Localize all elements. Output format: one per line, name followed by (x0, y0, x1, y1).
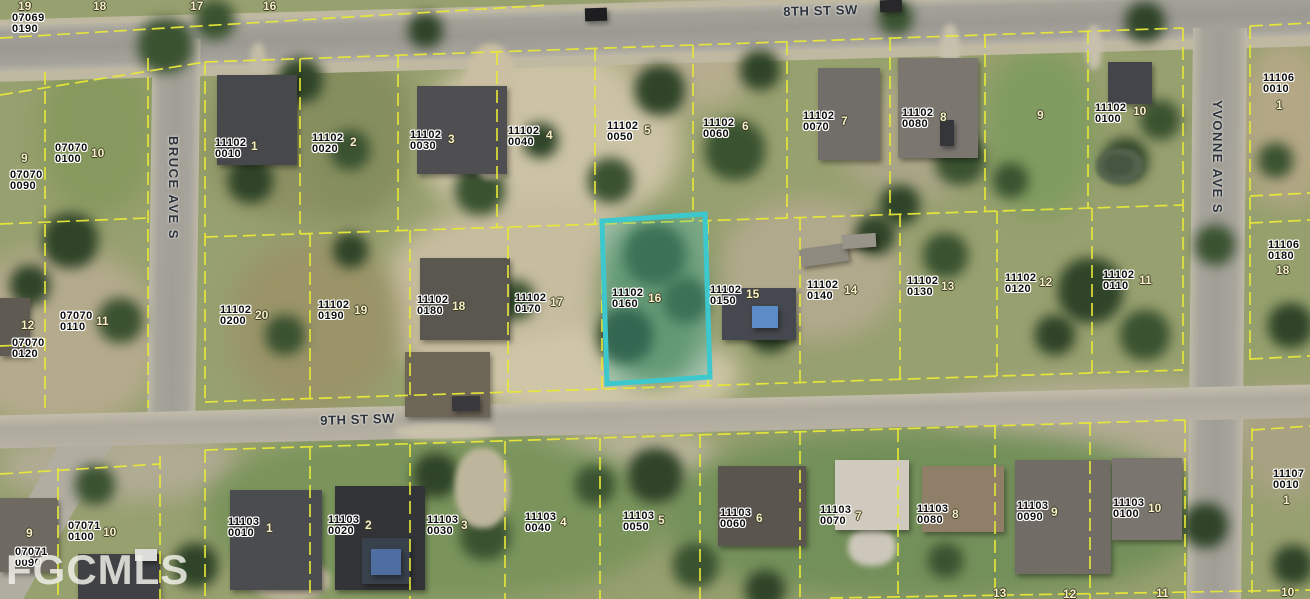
edge-lot-number-label: 10 (1281, 586, 1294, 598)
parcel-id-label: 111020120 (1005, 273, 1036, 295)
parcel-id-label: 070700100 (55, 143, 88, 165)
parcel-id-label: 111020200 (220, 305, 251, 327)
parcel-id-label: 111020170 (515, 293, 546, 315)
lot-number-label: 9 (1037, 109, 1044, 121)
parcel-id-label: 111020080 (902, 108, 933, 130)
lot-number-label: 9 (21, 152, 28, 164)
parcel-id-label: 111030080 (917, 504, 948, 526)
lot-number-label: 14 (844, 284, 857, 296)
parcel-id-label: 070700120 (12, 338, 45, 360)
parcel-id-label: 111030060 (720, 508, 751, 530)
parcel-id-label: 111020160 (612, 288, 643, 310)
edge-lot-number-label: 11 (1156, 587, 1169, 599)
lot-number-label: 10 (103, 526, 116, 538)
lot-number-label: 2 (350, 136, 357, 148)
parcel-id-label: 111030030 (427, 515, 458, 537)
parcel-id-label: 111030050 (623, 511, 654, 533)
parcel-id-label: 111020050 (607, 121, 638, 143)
lot-number-label: 18 (1276, 264, 1289, 276)
edge-lot-number-label: 13 (993, 587, 1006, 599)
lot-number-label: 11 (96, 315, 109, 327)
parcel-id-label: 111030100 (1113, 498, 1144, 520)
lot-number-label: 3 (461, 519, 468, 531)
lot-number-label: 8 (940, 111, 947, 123)
lot-number-label: 6 (756, 512, 763, 524)
lot-number-label: 12 (21, 319, 34, 331)
lot-number-label: 18 (452, 300, 465, 312)
parcel-id-label: 111020110 (1103, 270, 1134, 292)
parcel-id-label: 111030040 (525, 512, 556, 534)
street-name-label: 8TH ST SW (783, 2, 858, 19)
lot-number-label: 15 (746, 288, 759, 300)
edge-lot-number-label: 19 (18, 0, 31, 12)
street-name-label: 9TH ST SW (320, 411, 395, 428)
parcel-id-label: 070700110 (60, 311, 93, 333)
parcel-id-label: 111020030 (410, 130, 441, 152)
parcel-id-label: 111030020 (328, 515, 359, 537)
parcel-id-label: 111030070 (820, 505, 851, 527)
lot-number-label: 12 (1039, 276, 1052, 288)
parcel-id-label: 111020100 (1095, 103, 1126, 125)
parcel-id-label: 070690190 (12, 13, 45, 35)
lot-number-label: 10 (91, 147, 104, 159)
parcel-id-label: 111070010 (1273, 469, 1304, 491)
edge-lot-number-label: 18 (93, 0, 106, 12)
parcel-id-label: 111020130 (907, 276, 938, 298)
parcel-id-label: 111060180 (1268, 240, 1299, 262)
parcel-id-label: 111020150 (710, 285, 741, 307)
parcel-id-label: 111020190 (318, 300, 349, 322)
lot-number-label: 7 (855, 510, 862, 522)
lot-number-label: 1 (266, 522, 273, 534)
parcel-id-label: 111020070 (803, 111, 834, 133)
parcel-id-label: 111020010 (215, 138, 246, 160)
parcel-id-label: 111020060 (703, 118, 734, 140)
edge-lot-number-label: 17 (190, 0, 203, 12)
lot-number-label: 20 (255, 309, 268, 321)
parcel-id-label: 111020140 (807, 280, 838, 302)
labels-layer: 070690190 070700090 070700100 070700110 … (0, 0, 1310, 599)
lot-number-label: 17 (550, 296, 563, 308)
lot-number-label: 2 (365, 519, 372, 531)
lot-number-label: 1 (1283, 494, 1290, 506)
parcel-id-label: 111020020 (312, 133, 343, 155)
parcel-id-label: 070700090 (10, 170, 43, 192)
parcel-id-label: 111020180 (417, 295, 448, 317)
lot-number-label: 4 (560, 516, 567, 528)
lot-number-label: 5 (644, 124, 651, 136)
aerial-parcel-map: 070690190 070700090 070700100 070700110 … (0, 0, 1310, 599)
lot-number-label: 10 (1148, 502, 1161, 514)
mls-watermark: FGCMLS (6, 546, 189, 594)
parcel-id-label: 111020040 (508, 126, 539, 148)
lot-number-label: 1 (1276, 99, 1283, 111)
lot-number-label: 4 (546, 129, 553, 141)
street-name-label: BRUCE AVE S (166, 136, 181, 240)
lot-number-label: 5 (658, 514, 665, 526)
lot-number-label: 3 (448, 133, 455, 145)
lot-number-label: 7 (841, 115, 848, 127)
lot-number-label: 10 (1133, 105, 1146, 117)
lot-number-label: 9 (26, 527, 33, 539)
parcel-id-label: 111030010 (228, 517, 259, 539)
edge-lot-number-label: 16 (263, 0, 276, 12)
lot-number-label: 9 (1051, 506, 1058, 518)
lot-number-label: 6 (742, 120, 749, 132)
lot-number-label: 8 (952, 508, 959, 520)
lot-number-label: 13 (941, 280, 954, 292)
parcel-id-label: 111030090 (1017, 501, 1048, 523)
edge-lot-number-label: 12 (1063, 588, 1076, 599)
lot-number-label: 16 (648, 292, 661, 304)
parcel-id-label: 111060010 (1263, 73, 1294, 95)
lot-number-label: 19 (354, 304, 367, 316)
street-name-label: YVONNE AVE S (1210, 100, 1225, 214)
lot-number-label: 1 (251, 140, 258, 152)
parcel-id-label: 070710100 (68, 521, 101, 543)
lot-number-label: 11 (1139, 274, 1152, 286)
